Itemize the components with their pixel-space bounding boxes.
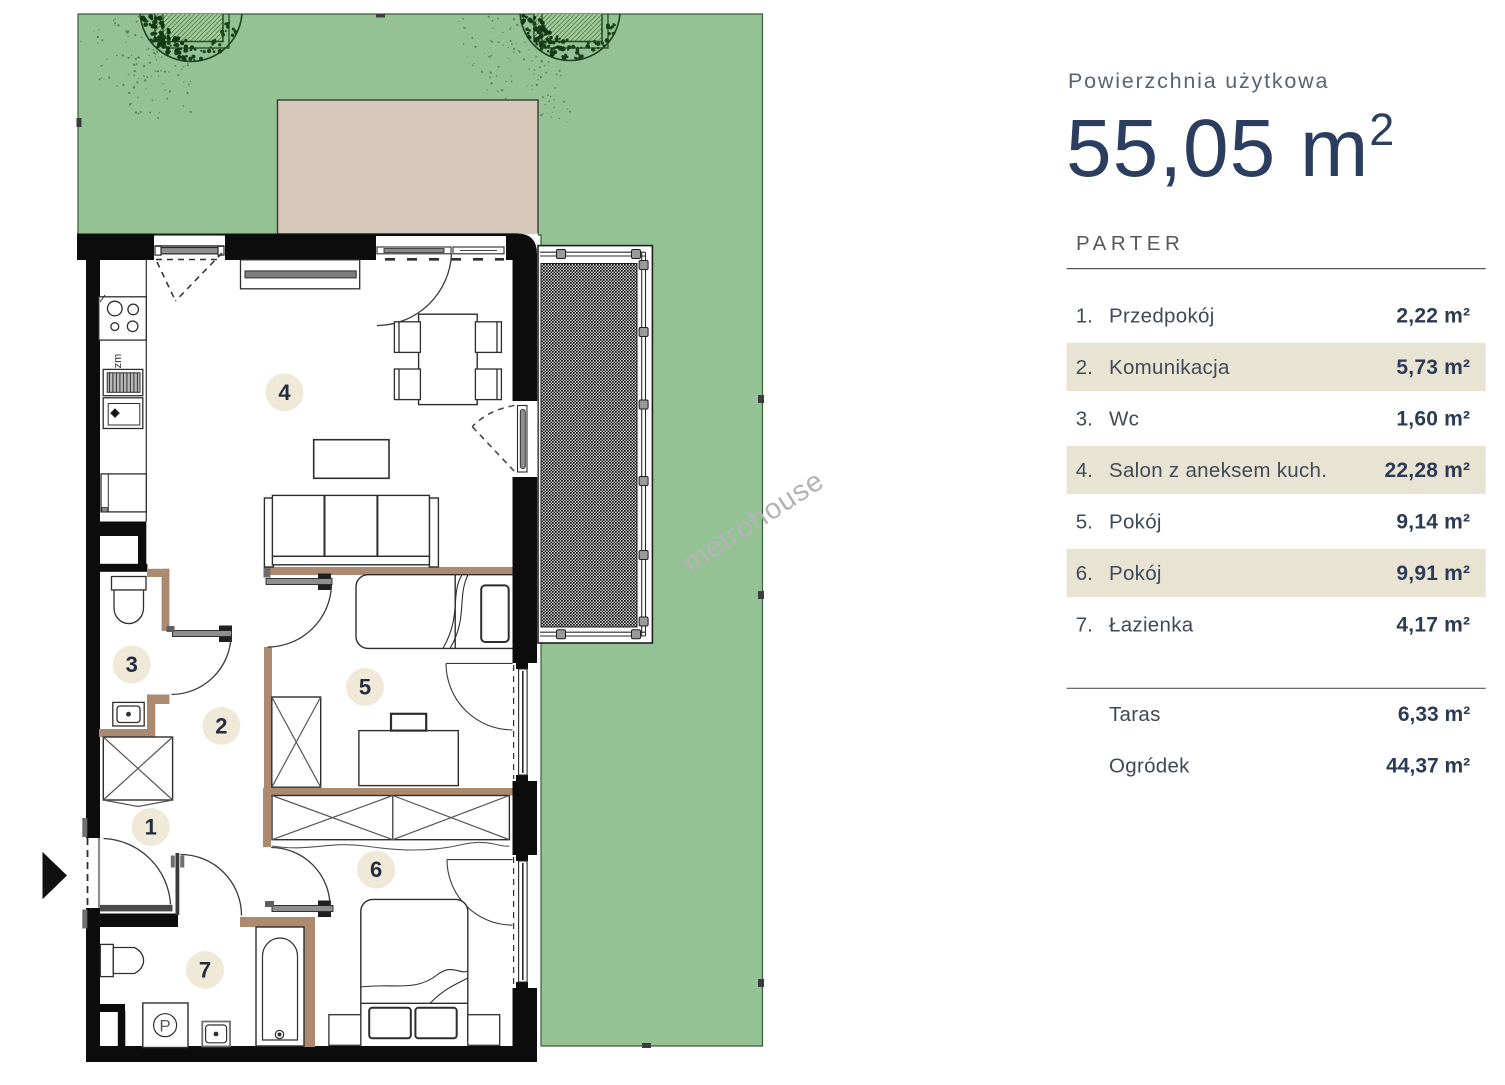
svg-text:22,28 m²: 22,28 m² (1385, 459, 1471, 482)
svg-text:Ogródek: Ogródek (1109, 755, 1190, 778)
svg-text:5.: 5. (1076, 511, 1093, 534)
svg-text:P: P (159, 1017, 170, 1036)
svg-text:Pokój: Pokój (1109, 562, 1162, 585)
svg-text:Taras: Taras (1109, 703, 1161, 726)
svg-text:Wc: Wc (1109, 408, 1139, 431)
svg-text:6.: 6. (1076, 562, 1093, 585)
svg-text:4: 4 (278, 380, 291, 405)
svg-text:9,14 m²: 9,14 m² (1396, 511, 1470, 534)
svg-text:55,05 m2: 55,05 m2 (1066, 103, 1395, 194)
svg-text:2: 2 (215, 714, 227, 739)
svg-text:1: 1 (145, 815, 157, 840)
svg-text:4.: 4. (1076, 459, 1093, 482)
svg-text:Powierzchnia użytkowa: Powierzchnia użytkowa (1068, 69, 1329, 93)
svg-text:7: 7 (199, 958, 211, 983)
svg-text:5,73 m²: 5,73 m² (1396, 356, 1470, 379)
svg-text:4,17 m²: 4,17 m² (1396, 614, 1470, 637)
svg-text:5: 5 (359, 675, 371, 700)
svg-text:Przedpokój: Przedpokój (1109, 305, 1215, 328)
svg-text:6: 6 (370, 857, 382, 882)
svg-text:2.: 2. (1076, 356, 1093, 379)
svg-text:3.: 3. (1076, 408, 1093, 431)
svg-text:9,91 m²: 9,91 m² (1396, 562, 1470, 585)
svg-text:3: 3 (126, 652, 138, 677)
svg-text:2,22 m²: 2,22 m² (1396, 305, 1470, 328)
svg-text:1.: 1. (1076, 305, 1093, 328)
svg-text:1,60 m²: 1,60 m² (1396, 408, 1470, 431)
svg-text:Pokój: Pokój (1109, 511, 1162, 534)
svg-text:Komunikacja: Komunikacja (1109, 356, 1230, 379)
svg-text:7.: 7. (1076, 614, 1093, 637)
svg-text:6,33 m²: 6,33 m² (1398, 703, 1470, 726)
svg-text:PARTER: PARTER (1076, 232, 1184, 255)
svg-text:zm: zm (112, 354, 124, 369)
svg-text:44,37 m²: 44,37 m² (1386, 755, 1470, 778)
svg-text:Salon z aneksem kuch.: Salon z aneksem kuch. (1109, 459, 1327, 482)
svg-text:Łazienka: Łazienka (1109, 614, 1194, 637)
